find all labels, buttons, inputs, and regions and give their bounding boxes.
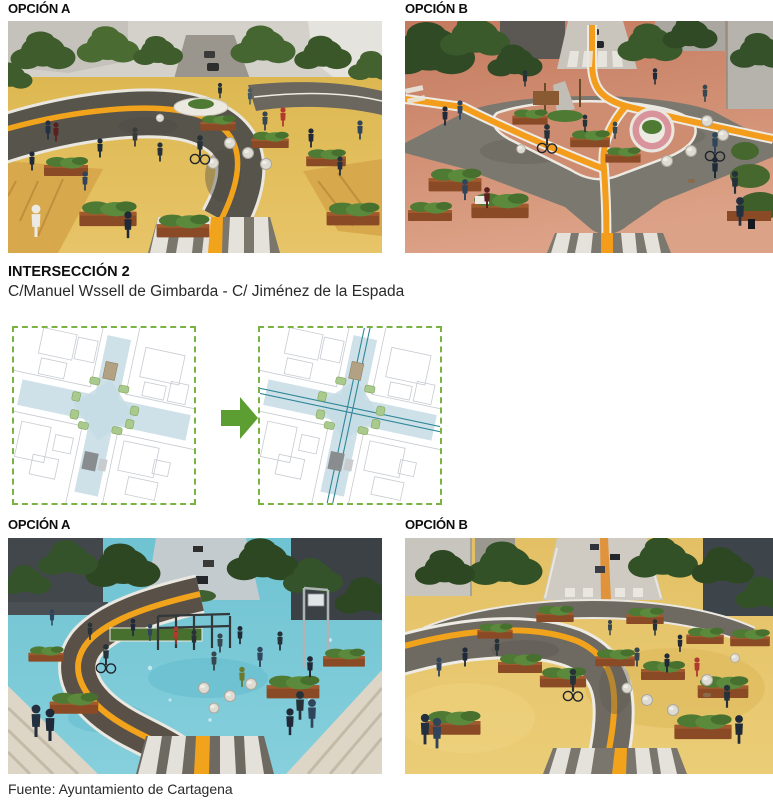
- render-image-bottom-option-b: [405, 538, 773, 774]
- render-image-top-option-a: [8, 21, 382, 253]
- section-title: INTERSECCIÓN 2: [8, 264, 130, 280]
- before-after-arrow-icon: [221, 396, 259, 440]
- plan-diagram-before: [12, 326, 196, 505]
- top-option-b-label: OPCIÓN B: [405, 1, 468, 16]
- bottom-option-b-label: OPCIÓN B: [405, 517, 468, 532]
- plan-diagram-after: [258, 326, 442, 505]
- top-option-a-label: OPCIÓN A: [8, 1, 70, 16]
- render-image-bottom-option-a: [8, 538, 382, 774]
- bottom-option-a-label: OPCIÓN A: [8, 517, 70, 532]
- section-subtitle: C/Manuel Wssell de Gimbarda - C/ Jiménez…: [8, 283, 404, 301]
- source-credit: Fuente: Ayuntamiento de Cartagena: [8, 781, 233, 797]
- article-figure-page: OPCIÓN A OPCIÓN B: [0, 0, 773, 800]
- render-image-top-option-b: [405, 21, 773, 253]
